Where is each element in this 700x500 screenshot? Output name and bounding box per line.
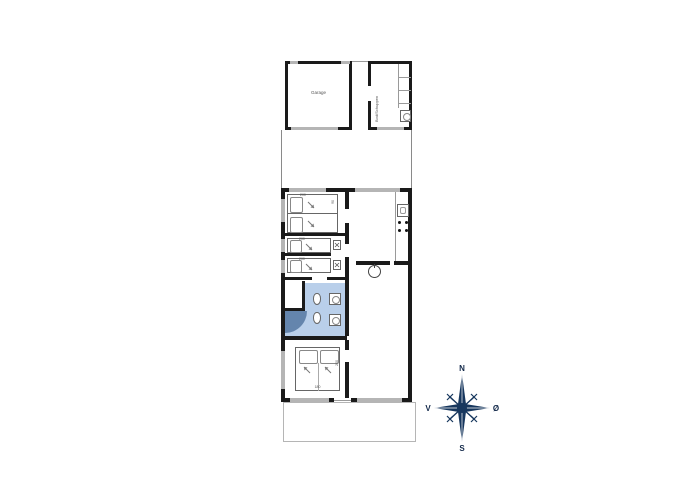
pillow-icon <box>290 197 303 213</box>
bed-length-label: 200 <box>336 360 340 366</box>
compass-south-label: S <box>459 444 465 452</box>
bed-arrow-icon <box>304 242 314 252</box>
bed-width-label: 180 <box>295 386 340 390</box>
stove-hob-icon <box>398 221 410 234</box>
shed-shelf-line <box>398 64 399 108</box>
terrace-area <box>283 402 416 442</box>
wall-segment <box>327 277 345 280</box>
sink-basin-icon <box>400 207 406 214</box>
bed-length-label: 200 <box>299 258 305 262</box>
compass-west-label: V <box>425 404 431 413</box>
bed-single <box>287 194 338 214</box>
wall-segment <box>285 253 331 256</box>
pillow-icon <box>299 350 318 364</box>
shed-shelf-line <box>398 90 411 91</box>
bed-arrow-icon <box>304 262 314 272</box>
kitchen-counter-line <box>395 192 396 261</box>
window-segment <box>281 239 285 252</box>
garage-label: Garage <box>285 91 352 96</box>
bed-single <box>287 258 331 273</box>
wall-segment <box>285 336 347 340</box>
bed-length-label: 200 <box>300 194 306 198</box>
window-segment <box>291 127 338 130</box>
pillow-icon <box>290 217 303 233</box>
bed-length-label: 200 <box>299 238 305 242</box>
compass-rose: N S V Ø <box>424 362 500 452</box>
wall-segment <box>345 192 349 209</box>
hob-dot <box>405 221 408 224</box>
fence-line <box>411 130 412 188</box>
shed-door-opening <box>368 86 371 101</box>
bedside-table-icon <box>333 240 341 250</box>
toilet-icon <box>313 293 321 305</box>
compass-star-icon: N S V Ø <box>424 362 500 452</box>
washbasin-icon <box>329 314 341 326</box>
compass-east-label: Ø <box>493 404 499 413</box>
bed-arrow-icon <box>323 365 333 375</box>
bed-single <box>287 238 331 253</box>
wall-segment <box>285 277 312 280</box>
wall-segment <box>345 340 349 350</box>
appliance-icon <box>400 110 411 122</box>
fence-line <box>281 130 282 188</box>
window-segment <box>355 188 400 192</box>
bed-single <box>287 213 338 233</box>
compass-north-label: N <box>459 364 465 373</box>
appliance-drum-icon <box>403 113 411 121</box>
bed-width-label: 90 <box>332 200 336 204</box>
window-segment <box>289 188 326 192</box>
window-segment <box>377 127 404 130</box>
hob-dot <box>398 229 401 232</box>
shed-shelf-line <box>398 77 411 78</box>
terrace-door-line <box>334 400 351 401</box>
window-segment <box>341 61 350 64</box>
window-segment <box>281 260 285 273</box>
window-segment <box>281 351 285 389</box>
toilet-icon <box>313 312 321 324</box>
cross-mark-icon <box>334 241 340 249</box>
bedside-table-icon <box>333 260 341 270</box>
shed-label: Bod/Schuppen <box>375 70 379 122</box>
hob-dot <box>405 229 408 232</box>
pillow-icon <box>290 240 302 253</box>
washbasin-icon <box>329 293 341 305</box>
wall-segment <box>345 362 349 398</box>
floorplan-page: Garage Bod/Schuppen <box>0 0 700 500</box>
bed-arrow-icon <box>306 219 316 229</box>
wall-segment <box>345 257 349 336</box>
passage-line <box>352 61 368 62</box>
wood-stove-icon <box>368 265 381 278</box>
shed-shelf-line <box>398 103 411 104</box>
wall-segment <box>302 281 305 311</box>
wall-segment <box>285 308 305 311</box>
cross-mark-icon <box>334 261 340 269</box>
bathroom-area <box>305 283 345 336</box>
pillow-icon <box>290 260 302 273</box>
wall-segment <box>394 261 412 265</box>
wall-segment <box>345 223 349 244</box>
window-segment <box>290 61 298 64</box>
wall-segment <box>285 233 345 236</box>
hob-dot <box>398 221 401 224</box>
window-segment <box>281 199 285 222</box>
kitchen-sink-icon <box>397 204 409 217</box>
basin-circle-icon <box>332 296 340 304</box>
basin-circle-icon <box>332 317 340 325</box>
garage-room <box>285 61 352 130</box>
bed-arrow-icon <box>302 365 312 375</box>
stove-flue-icon <box>374 264 375 268</box>
bed-arrow-icon <box>306 200 316 210</box>
